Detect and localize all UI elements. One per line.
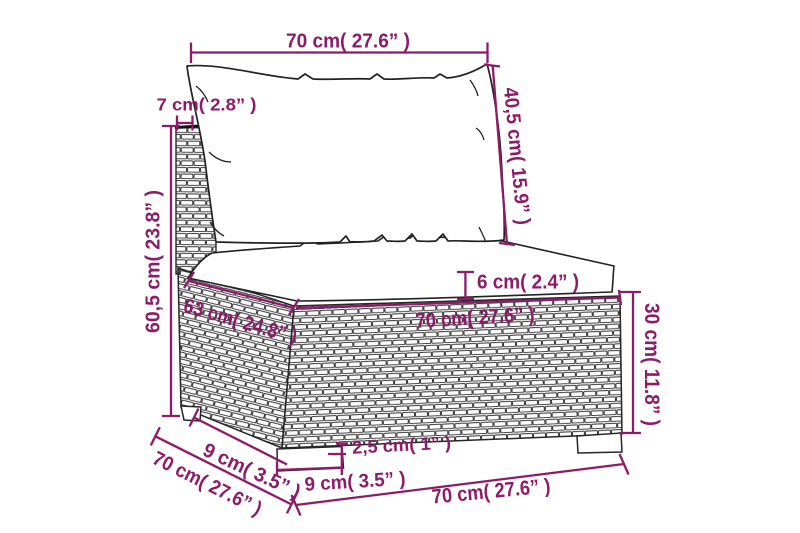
svg-text:70 cm( 27.6” ): 70 cm( 27.6” )	[286, 31, 410, 53]
svg-text:6 cm( 2.4” ): 6 cm( 2.4” )	[477, 272, 579, 294]
svg-text:7 cm( 2.8” ): 7 cm( 2.8” )	[157, 95, 257, 115]
svg-text:30 cm( 11.8” ): 30 cm( 11.8” )	[640, 303, 663, 426]
svg-text:60,5 cm( 23.8” ): 60,5 cm( 23.8” )	[143, 190, 165, 333]
